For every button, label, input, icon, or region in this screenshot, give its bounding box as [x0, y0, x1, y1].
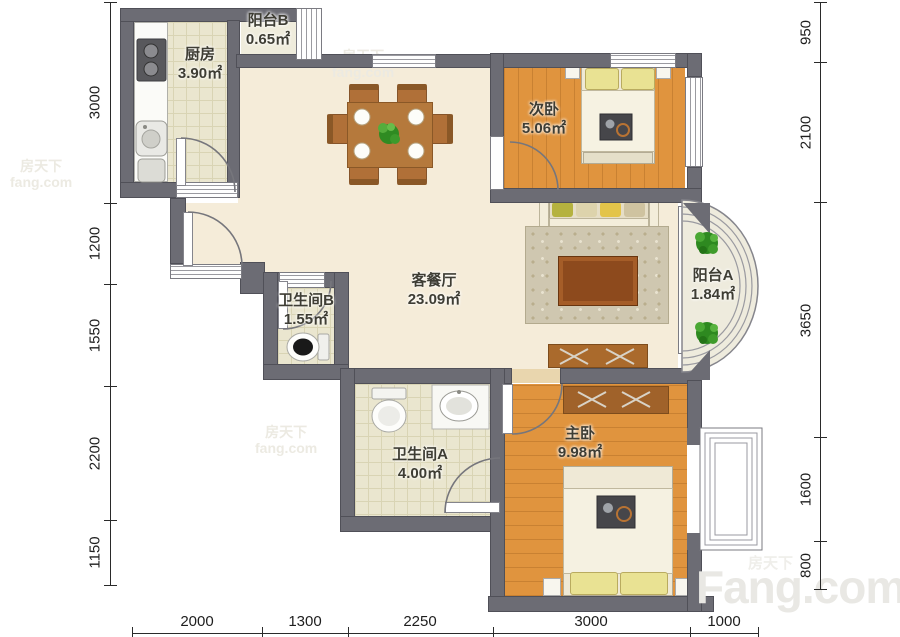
room-name: 厨房 — [158, 45, 242, 64]
room-area: 1.55㎡ — [266, 310, 346, 329]
dimension-tick — [104, 585, 117, 586]
room-area: 4.00㎡ — [380, 464, 460, 483]
dining-table — [347, 102, 433, 168]
dimension-tick — [104, 284, 117, 285]
dining-chair — [431, 114, 453, 144]
room-area: 3.90㎡ — [158, 64, 242, 83]
dimension-tick — [814, 437, 827, 438]
room-name: 卫生间B — [266, 291, 346, 310]
dimension-tick — [104, 2, 117, 3]
wall — [340, 368, 512, 384]
room-label-kitchen: 厨房 3.90㎡ — [158, 45, 242, 83]
door-leaf-bathroom-a — [445, 502, 500, 513]
dim-label: 1000 — [692, 613, 756, 630]
dimension-tick — [814, 2, 827, 3]
dim-label: 3000 — [559, 613, 623, 630]
wall — [560, 368, 702, 384]
dim-label: 2200 — [87, 422, 104, 486]
dim-label: 2000 — [165, 613, 229, 630]
nightstand — [543, 578, 561, 596]
wall — [490, 188, 702, 203]
bed-pillow — [620, 572, 668, 595]
room-name: 卫生间A — [380, 445, 460, 464]
wall — [340, 516, 505, 532]
room-area: 0.65㎡ — [234, 30, 302, 49]
door-leaf-kitchen — [176, 138, 186, 186]
bed-blanket — [563, 488, 673, 574]
dim-label: 950 — [798, 1, 815, 65]
room-label-bathroom-a: 卫生间A 4.00㎡ — [380, 445, 460, 483]
dim-label: 800 — [798, 534, 815, 598]
wall — [236, 54, 502, 68]
room-label-balcony-b: 阳台B 0.65㎡ — [234, 11, 302, 49]
dimension-tick — [104, 520, 117, 521]
sofa-pillow — [552, 202, 573, 217]
room-name: 客餐厅 — [392, 271, 476, 290]
dim-label: 3650 — [798, 289, 815, 353]
dresser — [563, 386, 669, 414]
sofa-pillow — [624, 202, 645, 217]
dim-label: 1200 — [87, 212, 104, 276]
wall — [687, 380, 702, 432]
dimension-tick — [262, 627, 263, 637]
coffee-table — [558, 256, 638, 306]
dimension-line-right — [820, 2, 821, 589]
bedroom-second-threshold — [490, 136, 504, 190]
room-label-bedroom-second: 次卧 5.06㎡ — [508, 100, 580, 138]
floorplan-canvas: 房天下fang.com 房天下fang.com 房天下fang.com — [0, 0, 900, 637]
dimension-tick — [814, 541, 827, 542]
dim-label: 1300 — [273, 613, 337, 630]
window-bedroom-second-side — [685, 77, 703, 167]
bed-blanket — [581, 90, 655, 152]
entry-door-threshold — [170, 264, 242, 279]
wall — [240, 262, 265, 294]
room-area: 1.84㎡ — [682, 285, 744, 304]
dimension-tick — [132, 627, 133, 637]
door-leaf-master — [502, 384, 513, 434]
master-bay-window — [687, 428, 762, 550]
dim-label: 2100 — [798, 101, 815, 165]
wall — [687, 53, 702, 77]
dimension-tick — [493, 627, 494, 637]
dim-label: 1600 — [798, 458, 815, 522]
door-opening — [512, 369, 560, 383]
dimension-tick — [690, 627, 691, 637]
wall — [340, 368, 355, 532]
bed-bench — [583, 152, 653, 164]
sofa-pillow — [576, 202, 597, 217]
wall — [120, 8, 134, 198]
room-label-living: 客餐厅 23.09㎡ — [392, 271, 476, 309]
room-label-balcony-a: 阳台A 1.84㎡ — [682, 266, 744, 304]
dim-label: 1550 — [87, 304, 104, 368]
bed-pillow — [585, 68, 619, 90]
dimension-tick — [104, 203, 117, 204]
dimension-tick — [348, 627, 349, 637]
dim-label: 2250 — [388, 613, 452, 630]
bed-pillow — [570, 572, 618, 595]
room-name: 主卧 — [544, 424, 616, 443]
dim-label: 3000 — [87, 71, 104, 135]
room-area: 23.09㎡ — [392, 290, 476, 309]
faint-watermark: 房天下fang.com — [255, 424, 317, 456]
dim-label: 1150 — [87, 521, 104, 585]
wall — [263, 364, 349, 380]
dimension-tick — [814, 62, 827, 63]
dimension-line-bottom — [132, 633, 758, 634]
dimension-tick — [814, 202, 827, 203]
room-area: 5.06㎡ — [508, 119, 580, 138]
door-leaf-entry — [183, 212, 193, 266]
wall — [120, 182, 178, 198]
floor-entry-vestibule — [186, 203, 242, 264]
faint-watermark: 房天下fang.com — [10, 158, 72, 190]
window-bedroom-second — [610, 53, 676, 68]
tv-stand — [548, 344, 648, 368]
dimension-tick — [104, 386, 117, 387]
sofa-pillow — [600, 202, 621, 217]
plant-icon — [695, 232, 718, 254]
dining-chair — [327, 114, 349, 144]
wall — [488, 596, 714, 612]
window-living-top — [372, 54, 436, 68]
dimension-tick — [814, 589, 827, 590]
dimension-line-left — [110, 2, 111, 585]
dimension-tick — [758, 627, 759, 637]
room-area: 9.98㎡ — [544, 443, 616, 462]
room-label-bathroom-b: 卫生间B 1.55㎡ — [266, 291, 346, 329]
room-name: 阳台A — [682, 266, 744, 285]
room-name: 阳台B — [234, 11, 302, 30]
room-label-bedroom-master: 主卧 9.98㎡ — [544, 424, 616, 462]
room-name: 次卧 — [508, 100, 580, 119]
plant-icon — [695, 322, 718, 344]
bed-pillow — [621, 68, 655, 90]
